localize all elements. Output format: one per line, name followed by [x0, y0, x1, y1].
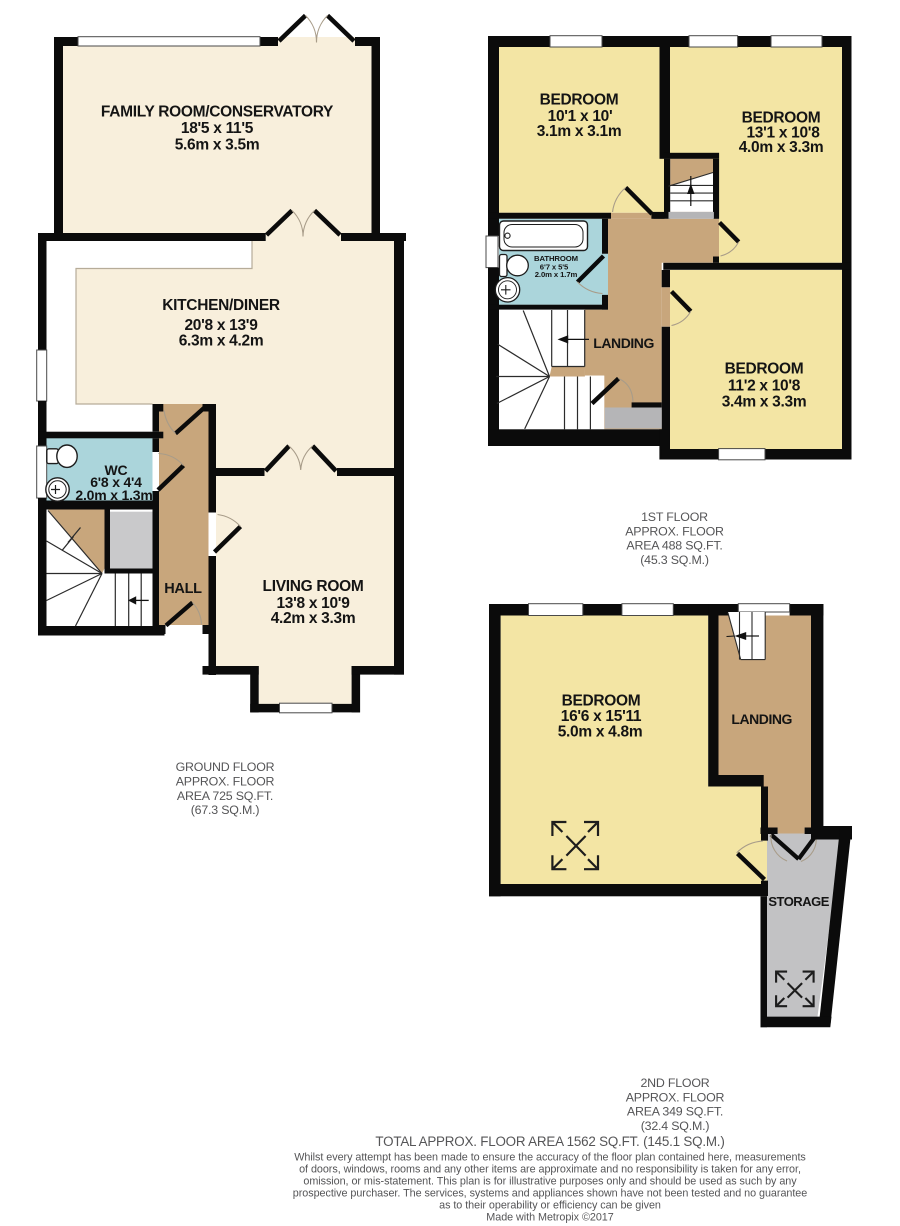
- svg-text:omission, or mis-statement. Th: omission, or mis-statement. This plan is…: [303, 1176, 797, 1188]
- svg-text:APPROX. FLOOR: APPROX. FLOOR: [625, 524, 724, 538]
- svg-text:2.0m x 1.7m: 2.0m x 1.7m: [535, 270, 578, 279]
- svg-text:KITCHEN/DINER: KITCHEN/DINER: [162, 297, 280, 314]
- svg-text:BEDROOM: BEDROOM: [540, 92, 619, 109]
- svg-text:1ST FLOOR: 1ST FLOOR: [641, 510, 708, 524]
- svg-text:(67.3 SQ.M.): (67.3 SQ.M.): [191, 803, 260, 817]
- svg-text:GROUND FLOOR: GROUND FLOOR: [176, 760, 275, 774]
- svg-text:TOTAL APPROX. FLOOR AREA 1562: TOTAL APPROX. FLOOR AREA 1562 SQ.FT. (14…: [375, 1134, 724, 1149]
- svg-text:4.0m x 3.3m: 4.0m x 3.3m: [739, 139, 824, 156]
- svg-text:6.3m x 4.2m: 6.3m x 4.2m: [179, 333, 264, 350]
- svg-text:5.6m x 3.5m: 5.6m x 3.5m: [175, 137, 260, 154]
- svg-text:16'6 x 15'11: 16'6 x 15'11: [561, 708, 642, 725]
- svg-text:3.4m x 3.3m: 3.4m x 3.3m: [722, 393, 807, 410]
- svg-text:FAMILY ROOM/CONSERVATORY: FAMILY ROOM/CONSERVATORY: [101, 104, 334, 121]
- svg-text:HALL: HALL: [164, 581, 202, 597]
- svg-text:(32.4 SQ.M.): (32.4 SQ.M.): [641, 1119, 710, 1133]
- svg-text:(45.3 SQ.M.): (45.3 SQ.M.): [640, 553, 709, 567]
- svg-text:11'2 x 10'8: 11'2 x 10'8: [728, 377, 801, 394]
- svg-text:as to their operability or eff: as to their operability or efficiency ca…: [439, 1200, 661, 1212]
- svg-text:LANDING: LANDING: [593, 335, 654, 351]
- svg-text:AREA 488 SQ.FT.: AREA 488 SQ.FT.: [626, 539, 722, 553]
- svg-text:4.2m x 3.3m: 4.2m x 3.3m: [271, 610, 356, 627]
- svg-text:BEDROOM: BEDROOM: [562, 693, 641, 710]
- svg-text:3.1m x 3.1m: 3.1m x 3.1m: [537, 123, 622, 140]
- svg-text:AREA 349 SQ.FT.: AREA 349 SQ.FT.: [627, 1105, 723, 1119]
- svg-text:2ND FLOOR: 2ND FLOOR: [640, 1076, 709, 1090]
- svg-text:20'8 x 13'9: 20'8 x 13'9: [184, 317, 258, 334]
- svg-text:2.0m x 1.3m: 2.0m x 1.3m: [75, 487, 152, 503]
- svg-text:Whilst every attempt has been: Whilst every attempt has been made to en…: [294, 1152, 806, 1164]
- svg-text:5.0m x 4.8m: 5.0m x 4.8m: [558, 724, 643, 741]
- svg-text:BEDROOM: BEDROOM: [725, 361, 804, 378]
- svg-text:prospective purchaser. The ser: prospective purchaser. The services, sys…: [293, 1188, 807, 1200]
- svg-text:of doors, windows, rooms and a: of doors, windows, rooms and any other i…: [299, 1164, 801, 1176]
- svg-text:APPROX. FLOOR: APPROX. FLOOR: [176, 774, 275, 788]
- svg-text:STORAGE: STORAGE: [768, 894, 829, 909]
- svg-text:18'5 x 11'5: 18'5 x 11'5: [181, 120, 254, 137]
- svg-text:APPROX. FLOOR: APPROX. FLOOR: [626, 1090, 725, 1104]
- svg-text:LIVING ROOM: LIVING ROOM: [263, 578, 364, 595]
- svg-text:AREA 725 SQ.FT.: AREA 725 SQ.FT.: [177, 789, 273, 803]
- svg-text:Made with Metropix ©2017: Made with Metropix ©2017: [486, 1212, 613, 1224]
- svg-text:LANDING: LANDING: [731, 711, 792, 727]
